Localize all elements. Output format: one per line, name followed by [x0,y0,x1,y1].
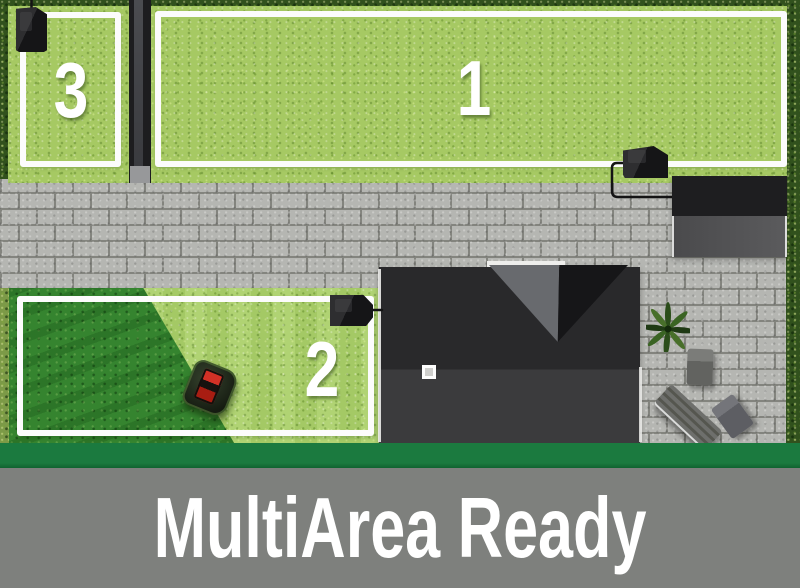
house-trim-right [639,367,642,442]
house-trim-left [378,269,381,442]
multiarea-garden-illustration: 1 2 3 MultiArea Ready [0,0,800,588]
banner: MultiArea Ready [0,468,800,588]
garage-roof-light [672,216,787,257]
hedge-right [786,0,800,444]
zone-3-label: 3 [54,51,89,129]
skylight [422,365,436,379]
banner-title: MultiArea Ready [154,486,647,571]
garage-roof-dark [672,176,787,216]
accent-green-bar [0,443,800,468]
zone-2-label: 2 [305,330,340,408]
house-roof [379,267,640,444]
zone-1-label: 1 [457,49,492,127]
garage-roof [672,176,787,257]
charging-station-zone-2 [330,295,373,326]
mower-red-panel [193,368,224,406]
patio-plant-icon [646,302,690,352]
charging-station-zone-1 [623,146,668,178]
patio-chair [686,349,713,386]
roof-valley [489,265,628,342]
garden-path-divider [129,0,151,183]
path-end-cap [130,166,150,183]
charging-station-zone-3 [16,7,47,52]
